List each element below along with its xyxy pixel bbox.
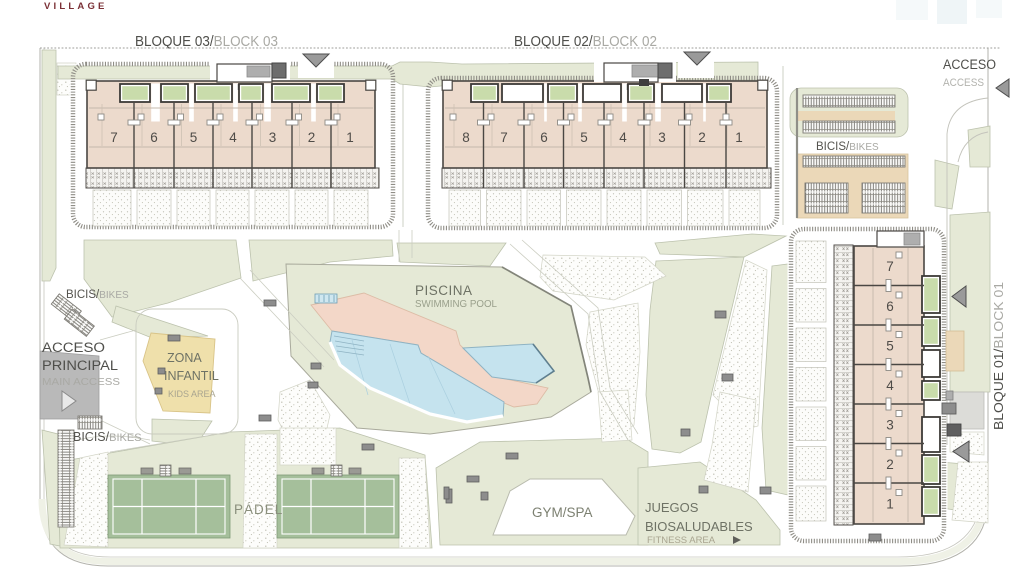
svg-text:ACCESO: ACCESO (42, 340, 105, 355)
svg-text:6: 6 (150, 130, 158, 145)
svg-text:4: 4 (886, 378, 894, 393)
svg-text:VILLAGE: VILLAGE (44, 1, 108, 12)
svg-text:7: 7 (110, 130, 118, 145)
svg-text:4: 4 (229, 130, 237, 145)
svg-text:6: 6 (886, 299, 894, 314)
svg-text:6: 6 (540, 130, 548, 145)
svg-text:JUEGOS: JUEGOS (645, 500, 699, 515)
svg-text:3: 3 (886, 418, 894, 433)
svg-text:ACCESO: ACCESO (943, 57, 996, 72)
svg-text:KIDS AREA: KIDS AREA (168, 389, 216, 399)
svg-text:MAIN ACCESS: MAIN ACCESS (42, 377, 120, 388)
svg-text:1: 1 (346, 130, 354, 145)
svg-text:1: 1 (735, 130, 743, 145)
svg-text:5: 5 (580, 130, 588, 145)
svg-text:PRINCIPAL: PRINCIPAL (42, 358, 119, 373)
svg-text:BICIS/BIKES: BICIS/BIKES (816, 141, 879, 153)
svg-text:PÁDEL: PÁDEL (234, 502, 283, 517)
svg-text:7: 7 (886, 259, 894, 274)
svg-text:7: 7 (500, 130, 508, 145)
svg-text:INFANTIL: INFANTIL (164, 369, 219, 383)
svg-text:1: 1 (886, 497, 894, 512)
svg-text:BLOQUE 02/BLOCK 02: BLOQUE 02/BLOCK 02 (514, 33, 657, 50)
svg-text:BICIS/BIKES: BICIS/BIKES (73, 430, 142, 444)
svg-text:PISCINA: PISCINA (415, 283, 473, 298)
svg-text:2: 2 (886, 457, 894, 472)
svg-text:2: 2 (308, 130, 316, 145)
svg-text:BICIS/BIKES: BICIS/BIKES (66, 289, 129, 301)
svg-text:FITNESS AREA: FITNESS AREA (647, 535, 716, 546)
svg-text:BLOQUE 01/BLOCK 01: BLOQUE 01/BLOCK 01 (991, 282, 1006, 430)
svg-text:BLOQUE 03/BLOCK 03: BLOQUE 03/BLOCK 03 (135, 33, 278, 50)
svg-text:2: 2 (698, 130, 706, 145)
svg-text:5: 5 (190, 130, 198, 145)
svg-text:ZONA: ZONA (167, 351, 202, 365)
svg-text:BIOSALUDABLES: BIOSALUDABLES (645, 519, 753, 534)
svg-text:4: 4 (619, 130, 627, 145)
svg-text:3: 3 (269, 130, 277, 145)
svg-text:5: 5 (886, 339, 894, 354)
svg-text:GYM/SPA: GYM/SPA (532, 505, 593, 520)
svg-text:3: 3 (658, 130, 666, 145)
svg-text:ACCESS: ACCESS (943, 77, 984, 89)
svg-text:SWIMMING POOL: SWIMMING POOL (415, 298, 497, 310)
svg-text:8: 8 (462, 130, 470, 145)
